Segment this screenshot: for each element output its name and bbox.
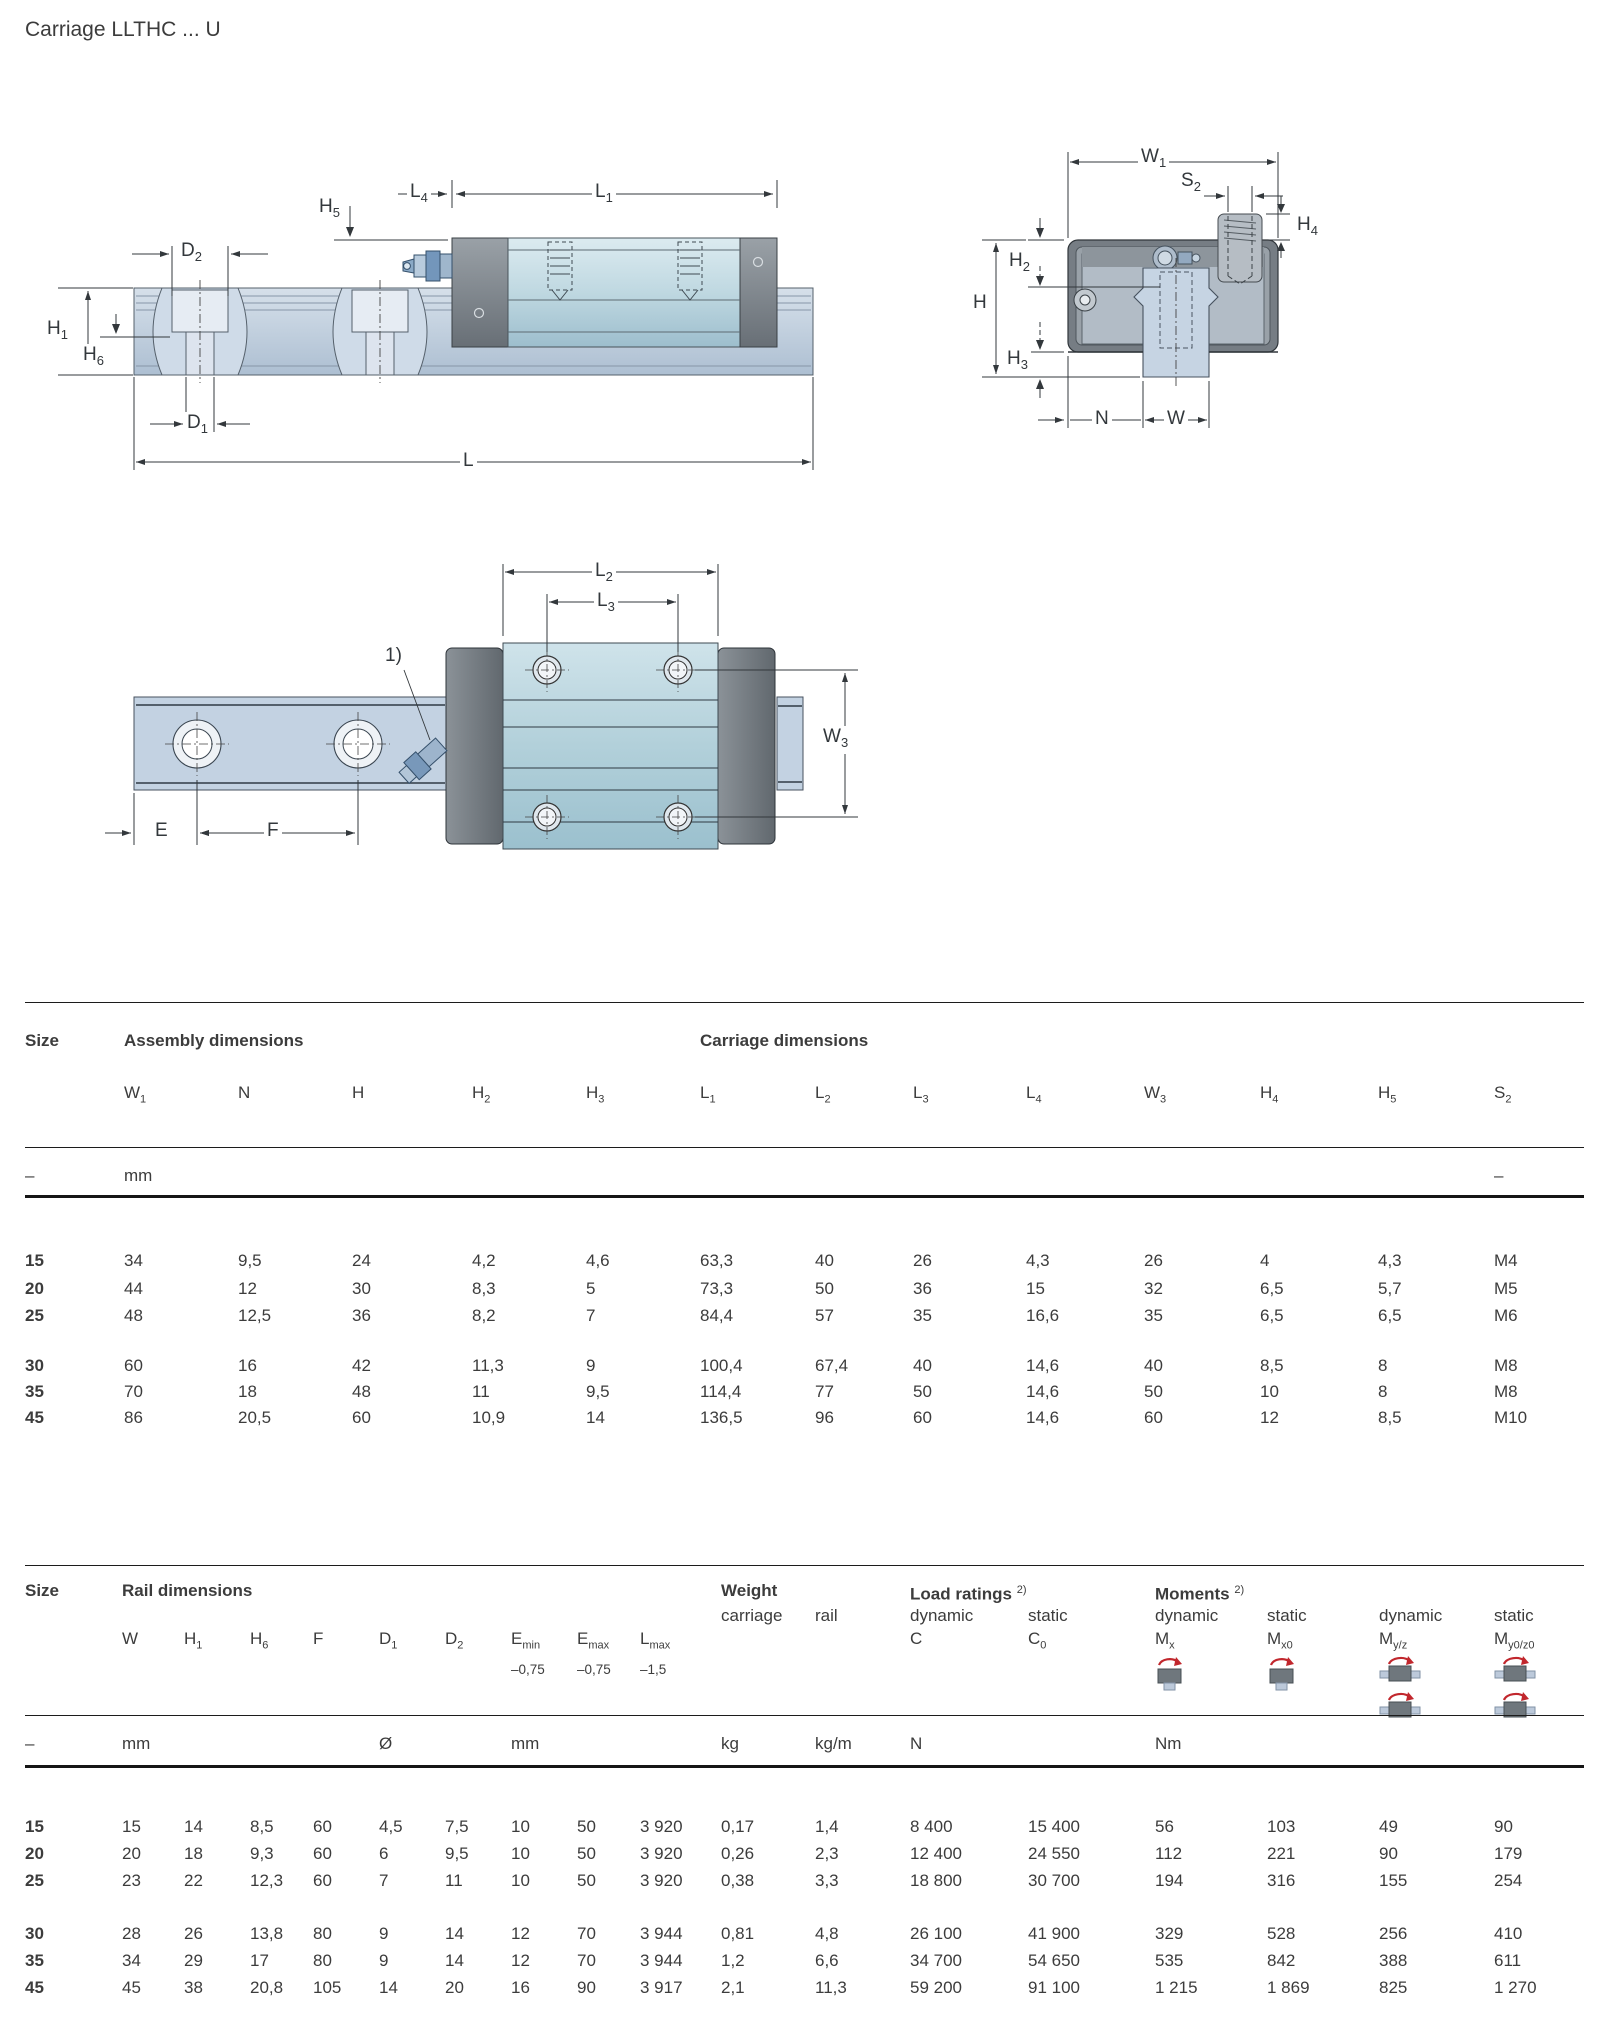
dim-label-h4: H4	[1294, 214, 1321, 242]
col-c0: C0	[1028, 1628, 1155, 1656]
table-cell: 14	[184, 1816, 250, 1837]
table-cell: 38	[184, 1977, 250, 1998]
table-cell: 70	[577, 1923, 640, 1944]
assembly-carriage-dimensions-table: Size Assembly dimensions Carriage dimens…	[25, 1002, 1584, 1452]
rail-weight-load-moments-table: Size Rail dimensions Weight Load ratings…	[25, 1565, 1584, 2021]
col-n: N	[238, 1082, 352, 1110]
table-cell: 1 270	[1494, 1977, 1584, 1998]
table-row: 204412308,3573,3503615326,55,7M5	[25, 1278, 1584, 1299]
table-cell: 6,6	[815, 1950, 910, 1971]
table-cell: 23	[122, 1870, 184, 1891]
table-cell: 316	[1267, 1870, 1379, 1891]
table-cell: 329	[1155, 1923, 1267, 1944]
table-cell: 1 215	[1155, 1977, 1267, 1998]
dim-label-h: H	[970, 292, 990, 320]
table-cell: 44	[124, 1278, 238, 1299]
table-cell: 15 400	[1028, 1816, 1155, 1837]
col-mx0: Mx0	[1267, 1628, 1379, 1656]
col-w1: W1	[124, 1082, 238, 1110]
table-cell: 60	[313, 1816, 379, 1837]
table-row: 1515148,5604,57,510503 9200,171,48 40015…	[25, 1816, 1584, 1837]
table-cell: 11	[445, 1870, 511, 1891]
table-cell: 36	[913, 1278, 1026, 1299]
catalog-page: { "page": { "title": "Carriage LLTHC ...…	[0, 0, 1609, 2021]
table-cell: 11,3	[472, 1355, 586, 1376]
table-row: 35701848119,5114,4775014,650108M8	[25, 1381, 1584, 1402]
table-cell: 29	[184, 1950, 250, 1971]
dim-label-d1: D1	[184, 412, 211, 440]
table-cell: 9,5	[238, 1250, 352, 1271]
table-cell: 8,5	[1378, 1407, 1494, 1428]
table-cell: 15	[1026, 1278, 1144, 1299]
unit-mm-e: mm	[511, 1733, 577, 1754]
table-cell: 100,4	[700, 1355, 815, 1376]
dim-label-l2: L2	[592, 560, 616, 588]
moment-my0z0-icon	[1494, 1655, 1584, 1721]
table-cell: 59 200	[910, 1977, 1028, 1998]
table-cell: 22	[184, 1870, 250, 1891]
table-cell: 57	[815, 1305, 913, 1326]
table-cell: 0,38	[721, 1870, 815, 1891]
table-cell: 4,3	[1026, 1250, 1144, 1271]
footnote-marker-1: 1)	[382, 645, 405, 667]
table-cell: 9	[379, 1923, 445, 1944]
table-cell: 825	[1379, 1977, 1494, 1998]
table-cell: 12	[1260, 1407, 1378, 1428]
table-cell: 6	[379, 1843, 445, 1864]
table-cell: 6,5	[1260, 1305, 1378, 1326]
col-w3: W3	[1144, 1082, 1260, 1110]
table-cell: 41 900	[1028, 1923, 1155, 1944]
dim-label-w3: W3	[820, 726, 851, 754]
table-cell: 12,5	[238, 1305, 352, 1326]
table-cell: 535	[1155, 1950, 1267, 1971]
unit-size: –	[25, 1165, 124, 1186]
col-h4: H4	[1260, 1082, 1378, 1110]
table-cell: 45	[25, 1977, 122, 1998]
dim-label-n: N	[1092, 408, 1112, 436]
sub-rail: rail	[815, 1605, 910, 1626]
sub-static-my0z0: static	[1494, 1605, 1584, 1626]
table2-group-weight: Weight	[721, 1580, 910, 1605]
table-row: 30282613,88091412703 9440,814,826 10041 …	[25, 1923, 1584, 1944]
table-cell: 3 944	[640, 1950, 721, 1971]
dim-label-s2: S2	[1178, 170, 1204, 198]
col-l4: L4	[1026, 1082, 1144, 1110]
table-cell: 17	[250, 1950, 313, 1971]
table-cell: 32	[1144, 1278, 1260, 1299]
table-cell: 25	[25, 1305, 124, 1326]
table-cell: 3 917	[640, 1977, 721, 1998]
table-cell: 12,3	[250, 1870, 313, 1891]
table-cell: 105	[313, 1977, 379, 1998]
table-cell: 28	[122, 1923, 184, 1944]
table-cell: 15	[25, 1250, 124, 1271]
table-cell: 10	[511, 1816, 577, 1837]
table-cell: 8,3	[472, 1278, 586, 1299]
table-cell: 256	[1379, 1923, 1494, 1944]
table-cell: 7	[586, 1305, 700, 1326]
table2-group-rail: Rail dimensions	[122, 1580, 721, 1605]
table-cell: 50	[913, 1381, 1026, 1402]
col-h3: H3	[586, 1082, 700, 1110]
table-cell: 30	[25, 1355, 124, 1376]
table-cell: 14	[445, 1923, 511, 1944]
col-c: C	[910, 1628, 1028, 1656]
table-row: 2020189,36069,510503 9200,262,312 40024 …	[25, 1843, 1584, 1864]
col-h5: H5	[1378, 1082, 1494, 1110]
table-cell: 70	[124, 1381, 238, 1402]
dim-label-h1: H1	[44, 318, 71, 346]
table-cell: 26	[184, 1923, 250, 1944]
table-cell: 20	[25, 1843, 122, 1864]
col-w: W	[122, 1628, 184, 1656]
table-cell: 56	[1155, 1816, 1267, 1837]
table-cell: 25	[25, 1870, 122, 1891]
table1-size-header: Size	[25, 1030, 124, 1051]
col-h6: H6	[250, 1628, 313, 1656]
table-cell: 8,2	[472, 1305, 586, 1326]
table-cell: M10	[1494, 1407, 1584, 1428]
table-cell: 86	[124, 1407, 238, 1428]
table-cell: 20	[25, 1278, 124, 1299]
table-cell: 14,6	[1026, 1355, 1144, 1376]
table-cell: 20,8	[250, 1977, 313, 1998]
table-row: 15349,5244,24,663,340264,32644,3M4	[25, 1250, 1584, 1271]
dim-label-l1: L1	[592, 181, 616, 209]
table-row: 25232212,36071110503 9200,383,318 80030 …	[25, 1870, 1584, 1891]
table-cell: 12	[511, 1923, 577, 1944]
moment-myz-icon	[1379, 1655, 1494, 1721]
table-cell: 34	[122, 1950, 184, 1971]
table-row: 353429178091412703 9441,26,634 70054 650…	[25, 1950, 1584, 1971]
table-cell: 221	[1267, 1843, 1379, 1864]
table-cell: 8	[1378, 1381, 1494, 1402]
col-s2: S2	[1494, 1082, 1584, 1110]
unit-kg: kg	[721, 1733, 815, 1754]
dim-label-f: F	[264, 820, 282, 848]
table-cell: 24	[352, 1250, 472, 1271]
dim-label-d2: D2	[178, 240, 205, 268]
table-cell: 14,6	[1026, 1407, 1144, 1428]
table-cell: 40	[913, 1355, 1026, 1376]
dim-label-h2: H2	[1006, 250, 1033, 278]
table-cell: 8,5	[250, 1816, 313, 1837]
table-cell: 3 920	[640, 1843, 721, 1864]
table-cell: 80	[313, 1950, 379, 1971]
table-cell: 14	[379, 1977, 445, 1998]
table-cell: 24 550	[1028, 1843, 1155, 1864]
table-cell: 42	[352, 1355, 472, 1376]
unit-size: –	[25, 1733, 122, 1754]
table2-size-header: Size	[25, 1580, 122, 1605]
moment-mx-icon	[1155, 1655, 1267, 1721]
table-cell: 73,3	[700, 1278, 815, 1299]
table-cell: 34	[124, 1250, 238, 1271]
table-cell: 10	[1260, 1381, 1378, 1402]
table-cell: 35	[913, 1305, 1026, 1326]
table-cell: 9	[379, 1950, 445, 1971]
table-cell: 34 700	[910, 1950, 1028, 1971]
table-cell: 10	[511, 1870, 577, 1891]
table-cell: 18	[184, 1843, 250, 1864]
dim-label-w: W	[1164, 408, 1188, 436]
table-cell: 4,6	[586, 1250, 700, 1271]
table-cell: 114,4	[700, 1381, 815, 1402]
table-cell: 1,4	[815, 1816, 910, 1837]
table1-group-assembly: Assembly dimensions	[124, 1030, 700, 1051]
unit-nm: Nm	[1155, 1733, 1267, 1754]
table-cell: 40	[1144, 1355, 1260, 1376]
table-row: 254812,5368,2784,4573516,6356,56,5M6	[25, 1305, 1584, 1326]
table-row: 3060164211,39100,467,44014,6408,58M8	[25, 1355, 1584, 1376]
table-cell: 90	[1379, 1843, 1494, 1864]
table-cell: 26	[1144, 1250, 1260, 1271]
table-cell: 4,3	[1378, 1250, 1494, 1271]
table-cell: 112	[1155, 1843, 1267, 1864]
col-l1: L1	[700, 1082, 815, 1110]
table-cell: 3 920	[640, 1870, 721, 1891]
col-d2: D2	[445, 1628, 511, 1656]
table-cell: 0,26	[721, 1843, 815, 1864]
table-cell: 63,3	[700, 1250, 815, 1271]
table-cell: 18 800	[910, 1870, 1028, 1891]
col-l3: L3	[913, 1082, 1026, 1110]
table-cell: 9,5	[586, 1381, 700, 1402]
table-cell: 179	[1494, 1843, 1584, 1864]
table-cell: 12 400	[910, 1843, 1028, 1864]
sub-dynamic-myz: dynamic	[1379, 1605, 1494, 1626]
table-cell: 528	[1267, 1923, 1379, 1944]
col-lmax: Lmax	[640, 1628, 721, 1656]
unit-diameter: Ø	[379, 1733, 445, 1754]
table-cell: 45	[122, 1977, 184, 1998]
table-cell: 842	[1267, 1950, 1379, 1971]
dim-label-h5: H5	[316, 196, 343, 224]
table-row: 45453820,8105142016903 9172,111,359 2009…	[25, 1977, 1584, 1998]
table-cell: 70	[577, 1950, 640, 1971]
table-cell: 77	[815, 1381, 913, 1402]
table-cell: 60	[913, 1407, 1026, 1428]
table-cell: 5	[586, 1278, 700, 1299]
table-cell: 80	[313, 1923, 379, 1944]
grease-nipple	[403, 251, 452, 281]
table-cell: 50	[577, 1870, 640, 1891]
table-cell: 49	[1379, 1816, 1494, 1837]
table-cell: 16	[511, 1977, 577, 1998]
col-h: H	[352, 1082, 472, 1110]
table-cell: 50	[815, 1278, 913, 1299]
dim-label-l4: L4	[407, 181, 431, 209]
table-cell: 54 650	[1028, 1950, 1155, 1971]
table-cell: 96	[815, 1407, 913, 1428]
table-cell: 10	[511, 1843, 577, 1864]
col-mx: Mx	[1155, 1628, 1267, 1656]
col-emin: Emin	[511, 1628, 577, 1656]
table-cell: 6,5	[1260, 1278, 1378, 1299]
table-cell: 14,6	[1026, 1381, 1144, 1402]
table2-group-load: Load ratings 2)	[910, 1580, 1155, 1605]
table-cell: 2,3	[815, 1843, 910, 1864]
table-cell: 35	[1144, 1305, 1260, 1326]
sub-carriage: carriage	[721, 1605, 815, 1626]
unit-mm: mm	[124, 1165, 238, 1186]
table-cell: 26 100	[910, 1923, 1028, 1944]
table-row: 458620,56010,914136,5966014,660128,5M10	[25, 1407, 1584, 1428]
table-cell: 16,6	[1026, 1305, 1144, 1326]
table-cell: 90	[577, 1977, 640, 1998]
unit-s2: –	[1494, 1165, 1584, 1186]
table-cell: 11,3	[815, 1977, 910, 1998]
moment-mx0-icon	[1267, 1655, 1379, 1721]
table-cell: M8	[1494, 1355, 1584, 1376]
sub-dynamic-mx: dynamic	[1155, 1605, 1267, 1626]
table-cell: 67,4	[815, 1355, 913, 1376]
top-view-drawing	[95, 540, 885, 880]
table-cell: 20	[122, 1843, 184, 1864]
table-cell: 15	[122, 1816, 184, 1837]
table-cell: 10,9	[472, 1407, 586, 1428]
table-cell: 13,8	[250, 1923, 313, 1944]
table-cell: 30	[25, 1923, 122, 1944]
table-cell: 16	[238, 1355, 352, 1376]
table1-group-carriage: Carriage dimensions	[700, 1030, 1584, 1051]
dim-label-h6: H6	[80, 344, 107, 372]
table-cell: 35	[25, 1950, 122, 1971]
dim-label-e: E	[152, 820, 171, 848]
table-cell: 50	[577, 1843, 640, 1864]
table-cell: 410	[1494, 1923, 1584, 1944]
table-cell: 60	[313, 1870, 379, 1891]
side-view-drawing	[30, 120, 830, 485]
sub-static-mx0: static	[1267, 1605, 1379, 1626]
table-cell: 15	[25, 1816, 122, 1837]
table-cell: 9	[586, 1355, 700, 1376]
table-cell: 36	[352, 1305, 472, 1326]
table-cell: 30 700	[1028, 1870, 1155, 1891]
sub-dynamic-c: dynamic	[910, 1605, 1028, 1626]
table-cell: 1,2	[721, 1950, 815, 1971]
table-cell: M5	[1494, 1278, 1584, 1299]
table-cell: M4	[1494, 1250, 1584, 1271]
table2-group-moments: Moments 2)	[1155, 1580, 1584, 1605]
table-cell: 48	[124, 1305, 238, 1326]
table-cell: 40	[815, 1250, 913, 1271]
table-cell: 1 869	[1267, 1977, 1379, 1998]
table-cell: 8 400	[910, 1816, 1028, 1837]
dim-label-l3: L3	[594, 590, 618, 618]
table-cell: 2,1	[721, 1977, 815, 1998]
col-d1: D1	[379, 1628, 445, 1656]
table-cell: 60	[313, 1843, 379, 1864]
table-cell: 3 920	[640, 1816, 721, 1837]
dim-label-h3: H3	[1004, 348, 1031, 376]
table-cell: 14	[586, 1407, 700, 1428]
col-my0z0: My0/z0	[1494, 1628, 1584, 1656]
unit-n: N	[910, 1733, 1028, 1754]
table-cell: 388	[1379, 1950, 1494, 1971]
table-cell: 45	[25, 1407, 124, 1428]
table-cell: 14	[445, 1950, 511, 1971]
table-cell: 254	[1494, 1870, 1584, 1891]
unit-mm-rail: mm	[122, 1733, 184, 1754]
col-h2: H2	[472, 1082, 586, 1110]
table-cell: M8	[1494, 1381, 1584, 1402]
page-title: Carriage LLTHC ... U	[25, 18, 221, 42]
col-myz: My/z	[1379, 1628, 1494, 1656]
table-cell: 8,5	[1260, 1355, 1378, 1376]
table-cell: 60	[124, 1355, 238, 1376]
col-f: F	[313, 1628, 379, 1656]
table-cell: 9,3	[250, 1843, 313, 1864]
table-cell: M6	[1494, 1305, 1584, 1326]
col-l2: L2	[815, 1082, 913, 1110]
table-cell: 611	[1494, 1950, 1584, 1971]
table-cell: 194	[1155, 1870, 1267, 1891]
table-cell: 84,4	[700, 1305, 815, 1326]
table-cell: 4,2	[472, 1250, 586, 1271]
table-cell: 20,5	[238, 1407, 352, 1428]
table-cell: 26	[913, 1250, 1026, 1271]
table-cell: 0,17	[721, 1816, 815, 1837]
col-emax: Emax	[577, 1628, 640, 1656]
table-cell: 60	[1144, 1407, 1260, 1428]
table-cell: 7	[379, 1870, 445, 1891]
table-cell: 136,5	[700, 1407, 815, 1428]
table-cell: 50	[1144, 1381, 1260, 1402]
table-cell: 0,81	[721, 1923, 815, 1944]
table-cell: 90	[1494, 1816, 1584, 1837]
dim-label-l: L	[460, 450, 477, 478]
table-cell: 5,7	[1378, 1278, 1494, 1299]
table-cell: 60	[352, 1407, 472, 1428]
table-cell: 48	[352, 1381, 472, 1402]
end-view-drawing	[950, 125, 1350, 455]
table-cell: 4,5	[379, 1816, 445, 1837]
sub-static-c0: static	[1028, 1605, 1155, 1626]
table-cell: 11	[472, 1381, 586, 1402]
unit-kg-m: kg/m	[815, 1733, 910, 1754]
table-cell: 103	[1267, 1816, 1379, 1837]
table-cell: 155	[1379, 1870, 1494, 1891]
table-cell: 12	[511, 1950, 577, 1971]
table-cell: 4,8	[815, 1923, 910, 1944]
table-cell: 12	[238, 1278, 352, 1299]
table-cell: 4	[1260, 1250, 1378, 1271]
table-cell: 30	[352, 1278, 472, 1299]
table-cell: 35	[25, 1381, 124, 1402]
table-cell: 91 100	[1028, 1977, 1155, 1998]
col-h1: H1	[184, 1628, 250, 1656]
table-cell: 3,3	[815, 1870, 910, 1891]
table-cell: 3 944	[640, 1923, 721, 1944]
table-cell: 6,5	[1378, 1305, 1494, 1326]
table-cell: 8	[1378, 1355, 1494, 1376]
table-cell: 9,5	[445, 1843, 511, 1864]
table-cell: 7,5	[445, 1816, 511, 1837]
table-cell: 50	[577, 1816, 640, 1837]
dim-label-w1: W1	[1138, 146, 1169, 174]
table-cell: 18	[238, 1381, 352, 1402]
table-cell: 20	[445, 1977, 511, 1998]
